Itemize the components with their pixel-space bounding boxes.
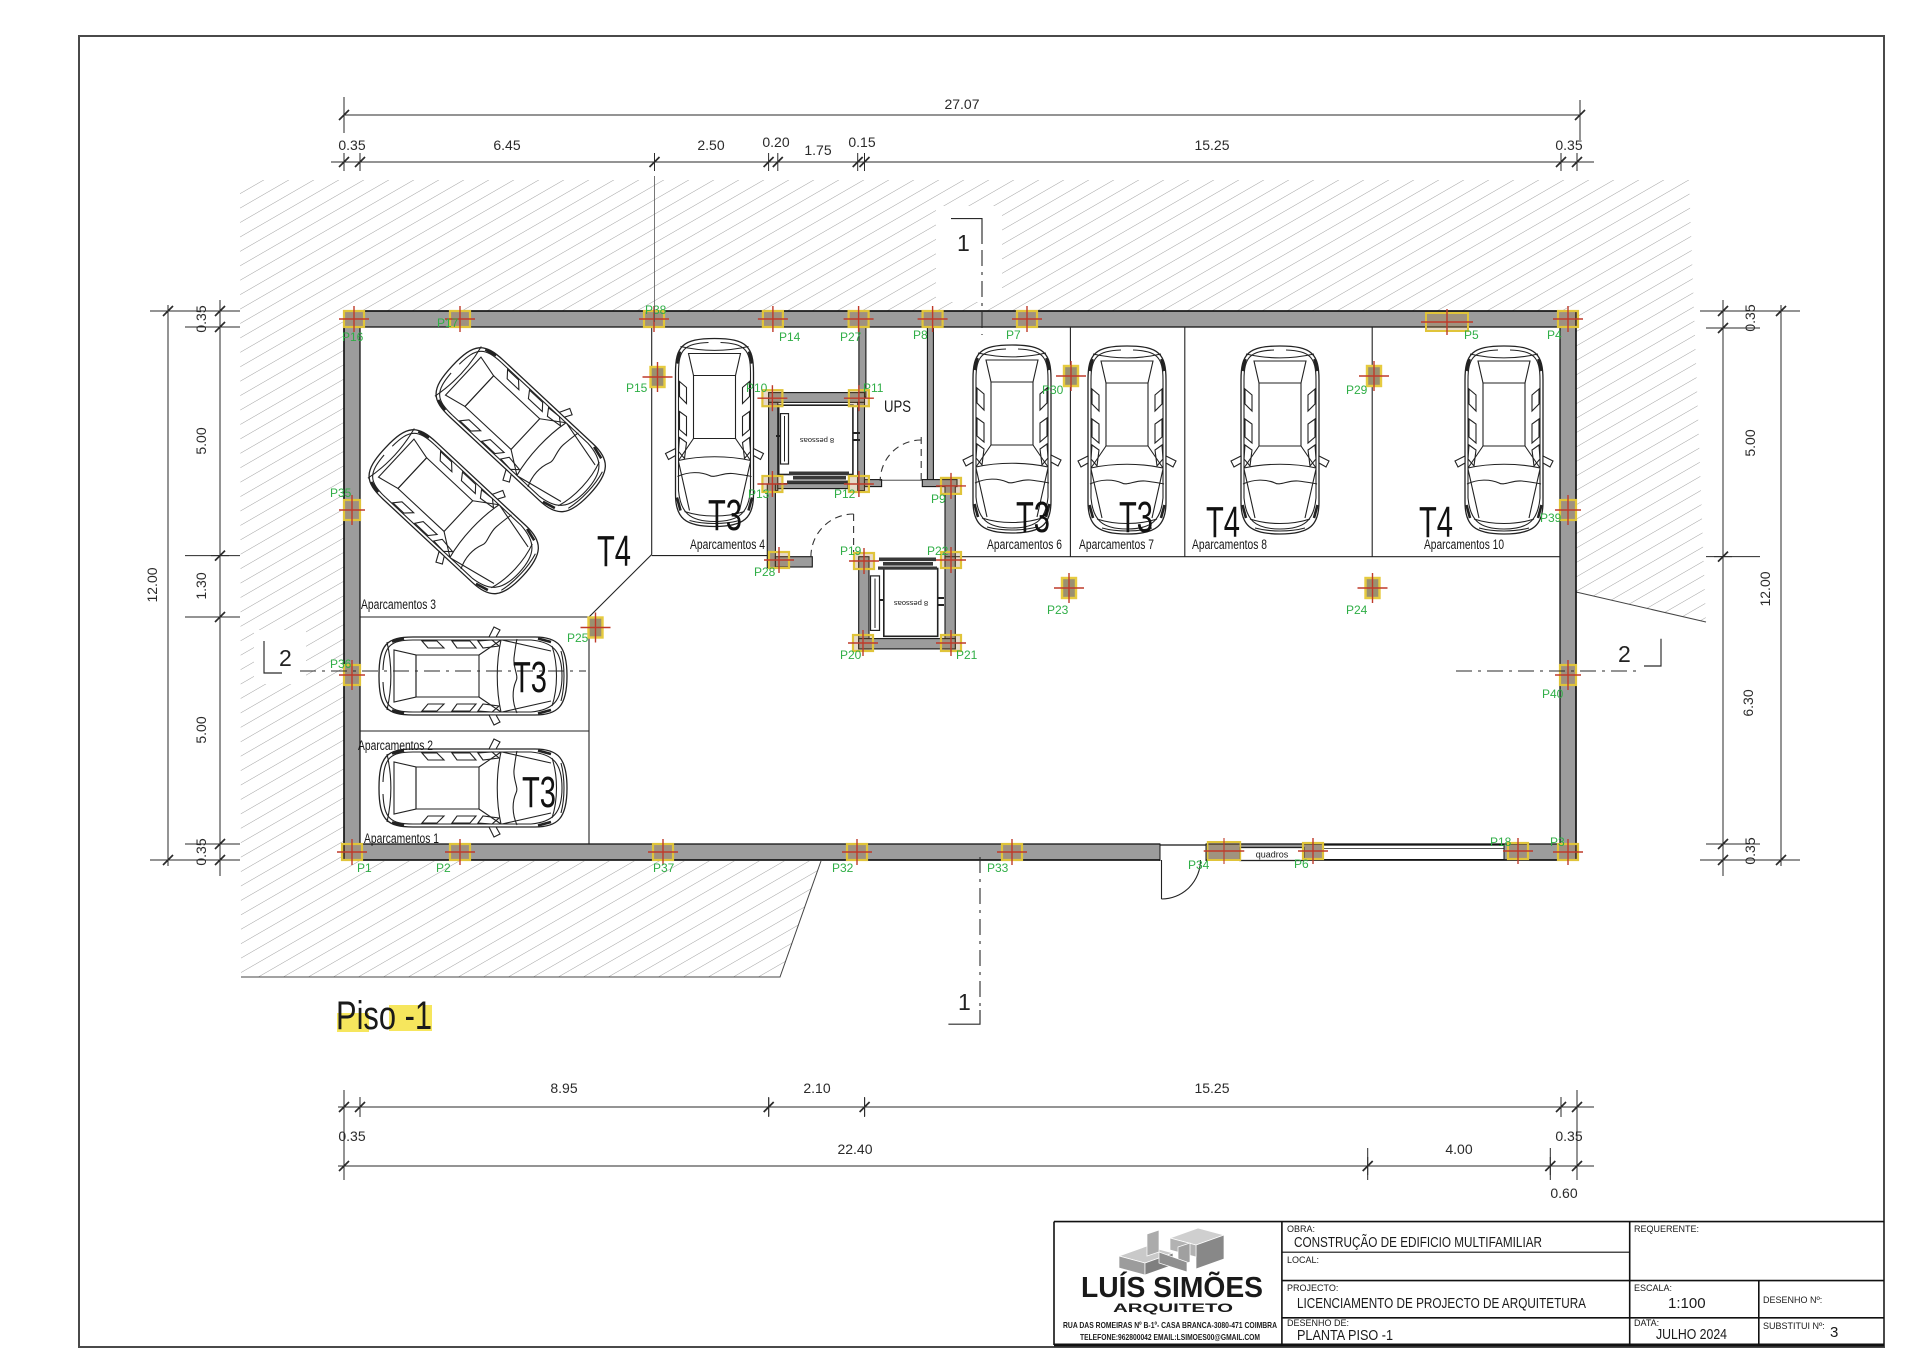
svg-text:P36: P36 (330, 657, 352, 671)
svg-text:2: 2 (1618, 641, 1631, 667)
svg-text:P5: P5 (1464, 328, 1479, 342)
svg-text:Aparcamentos 1: Aparcamentos 1 (364, 831, 439, 846)
svg-text:P33: P33 (987, 861, 1009, 875)
svg-text:8 pessoas: 8 pessoas (800, 436, 834, 445)
svg-text:Aparcamentos 8: Aparcamentos 8 (1192, 537, 1267, 552)
svg-text:P22: P22 (927, 544, 949, 558)
svg-text:P2: P2 (436, 861, 451, 875)
svg-text:Aparcamentos 3: Aparcamentos 3 (361, 597, 436, 612)
svg-text:P37: P37 (653, 861, 675, 875)
svg-text:P17: P17 (437, 316, 459, 330)
svg-text:12.00: 12.00 (1757, 571, 1773, 606)
svg-text:T4: T4 (597, 527, 631, 576)
svg-text:P19: P19 (840, 544, 862, 558)
svg-text:Aparcamentos 6: Aparcamentos 6 (987, 537, 1062, 552)
svg-text:Piso -1: Piso -1 (336, 994, 432, 1038)
svg-text:Aparcamentos 10: Aparcamentos 10 (1424, 537, 1504, 552)
svg-text:P20: P20 (840, 648, 862, 662)
svg-text:P6: P6 (1294, 857, 1309, 871)
svg-text:0.20: 0.20 (762, 134, 789, 150)
svg-text:P24: P24 (1346, 603, 1368, 617)
svg-text:P4: P4 (1547, 328, 1562, 342)
svg-text:JULHO 2024: JULHO 2024 (1656, 1326, 1727, 1343)
svg-text:2.10: 2.10 (803, 1080, 830, 1096)
svg-text:1: 1 (958, 989, 971, 1015)
svg-text:ARQUITETO: ARQUITETO (1113, 1301, 1233, 1315)
svg-text:15.25: 15.25 (1194, 1080, 1229, 1096)
svg-text:6.30: 6.30 (1740, 689, 1756, 716)
svg-text:6.45: 6.45 (493, 137, 520, 153)
svg-text:P16: P16 (342, 330, 364, 344)
svg-text:P14: P14 (779, 330, 801, 344)
svg-text:P11: P11 (863, 381, 884, 395)
svg-text:1: 1 (957, 230, 970, 256)
svg-text:0.35: 0.35 (193, 305, 209, 332)
svg-text:P39: P39 (1540, 511, 1562, 525)
svg-text:0.60: 0.60 (1550, 1185, 1577, 1201)
svg-text:P13: P13 (748, 487, 770, 501)
svg-text:0.35: 0.35 (338, 137, 365, 153)
svg-text:T3: T3 (513, 653, 547, 702)
svg-text:P9: P9 (931, 492, 946, 506)
svg-text:P3: P3 (1550, 835, 1565, 849)
svg-text:PROJECTO:: PROJECTO: (1287, 1283, 1338, 1293)
svg-text:Aparcamentos 2: Aparcamentos 2 (358, 738, 433, 753)
svg-text:0.15: 0.15 (848, 134, 875, 150)
svg-text:P23: P23 (1047, 603, 1069, 617)
svg-text:P1: P1 (357, 861, 372, 875)
svg-text:P40: P40 (1542, 687, 1564, 701)
svg-text:TELEFONE:962800042 EMAIL:LSIMO: TELEFONE:962800042 EMAIL:LSIMOES00@GMAIL… (1080, 1332, 1260, 1342)
svg-text:P30: P30 (1042, 383, 1064, 397)
svg-text:LOCAL:: LOCAL: (1287, 1255, 1319, 1265)
svg-text:SUBSTITUI Nº:: SUBSTITUI Nº: (1763, 1321, 1825, 1331)
svg-text:1.75: 1.75 (804, 142, 831, 158)
svg-text:8.95: 8.95 (550, 1080, 577, 1096)
svg-text:REQUERENTE:: REQUERENTE: (1634, 1224, 1699, 1234)
svg-text:22.40: 22.40 (837, 1141, 872, 1157)
svg-text:2.50: 2.50 (697, 137, 724, 153)
svg-text:1:100: 1:100 (1668, 1295, 1706, 1312)
svg-text:T3: T3 (1016, 493, 1050, 542)
svg-text:15.25: 15.25 (1194, 137, 1229, 153)
svg-text:P7: P7 (1006, 328, 1021, 342)
svg-text:quadros: quadros (1256, 850, 1289, 860)
svg-text:5.00: 5.00 (193, 716, 209, 743)
svg-text:0.35: 0.35 (1555, 1128, 1582, 1144)
svg-text:LICENCIAMENTO DE PROJECTO DE A: LICENCIAMENTO DE PROJECTO DE ARQUITETURA (1297, 1295, 1586, 1312)
svg-text:P32: P32 (832, 861, 854, 875)
svg-text:1.30: 1.30 (193, 572, 209, 599)
svg-text:UPS: UPS (884, 397, 911, 416)
svg-text:3: 3 (1830, 1324, 1838, 1341)
svg-text:P10: P10 (746, 381, 768, 395)
svg-text:ESCALA:: ESCALA: (1634, 1283, 1672, 1293)
svg-text:T3: T3 (1119, 493, 1153, 542)
svg-text:P15: P15 (626, 381, 648, 395)
svg-text:12.00: 12.00 (144, 567, 160, 602)
svg-text:P25: P25 (567, 631, 589, 645)
svg-text:5.00: 5.00 (193, 427, 209, 454)
svg-text:0.35: 0.35 (1742, 304, 1758, 331)
svg-text:P29: P29 (1346, 383, 1368, 397)
svg-text:0.35: 0.35 (193, 838, 209, 865)
svg-text:4.00: 4.00 (1445, 1141, 1472, 1157)
svg-text:T3: T3 (522, 768, 556, 817)
svg-text:Aparcamentos 7: Aparcamentos 7 (1079, 537, 1154, 552)
svg-text:27.07: 27.07 (944, 96, 979, 112)
svg-text:P12: P12 (834, 487, 856, 501)
svg-text:P28: P28 (754, 565, 776, 579)
svg-text:P34: P34 (1188, 858, 1210, 872)
svg-text:P21: P21 (956, 648, 978, 662)
svg-text:8 pessoas: 8 pessoas (894, 599, 928, 608)
svg-text:LUÍS SIMÕES: LUÍS SIMÕES (1081, 1270, 1263, 1304)
svg-text:0.35: 0.35 (1555, 137, 1582, 153)
svg-text:Aparcamentos 4: Aparcamentos 4 (690, 537, 765, 552)
svg-text:CONSTRUÇÃO DE EDIFICIO MULTIFA: CONSTRUÇÃO DE EDIFICIO MULTIFAMILIAR (1294, 1234, 1542, 1251)
svg-text:2: 2 (279, 645, 292, 671)
svg-text:RUA DAS ROMEIRAS Nº B-1º- CASA: RUA DAS ROMEIRAS Nº B-1º- CASA BRANCA-30… (1063, 1320, 1277, 1330)
svg-text:P38: P38 (645, 303, 667, 317)
svg-text:5.00: 5.00 (1742, 429, 1758, 456)
svg-text:P18: P18 (1490, 835, 1512, 849)
svg-text:0.35: 0.35 (1742, 837, 1758, 864)
svg-text:OBRA:: OBRA: (1287, 1224, 1315, 1234)
svg-text:0.35: 0.35 (338, 1128, 365, 1144)
svg-text:P35: P35 (330, 486, 352, 500)
svg-text:PLANTA PISO -1: PLANTA PISO -1 (1297, 1327, 1393, 1344)
svg-text:T3: T3 (708, 491, 742, 540)
svg-text:P8: P8 (913, 328, 928, 342)
svg-text:P27: P27 (840, 330, 862, 344)
svg-text:DESENHO Nº:: DESENHO Nº: (1763, 1295, 1822, 1305)
